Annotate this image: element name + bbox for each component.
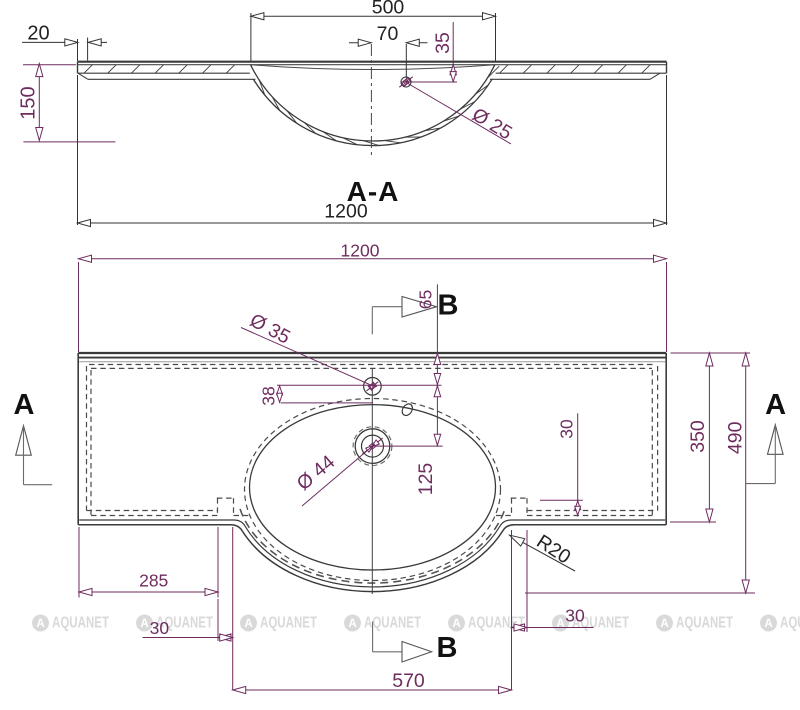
svg-text:38: 38 <box>259 386 279 405</box>
svg-text:B: B <box>438 290 459 322</box>
svg-text:A: A <box>765 389 786 421</box>
svg-text:A: A <box>348 618 356 630</box>
svg-text:70: 70 <box>377 23 399 45</box>
svg-text:A: A <box>244 618 252 630</box>
svg-text:A: A <box>452 618 460 630</box>
svg-text:AQUANET: AQUANET <box>260 615 317 632</box>
svg-text:35: 35 <box>432 32 454 54</box>
svg-text:1200: 1200 <box>324 201 368 223</box>
svg-text:30: 30 <box>557 419 577 439</box>
svg-text:65: 65 <box>416 290 436 309</box>
svg-text:30: 30 <box>565 606 585 626</box>
svg-text:285: 285 <box>139 571 168 591</box>
svg-text:490: 490 <box>724 421 746 454</box>
svg-text:570: 570 <box>392 670 425 692</box>
svg-text:A: A <box>764 618 772 630</box>
svg-text:A: A <box>14 389 35 421</box>
svg-text:350: 350 <box>687 420 709 453</box>
svg-text:A: A <box>660 618 668 630</box>
svg-text:30: 30 <box>150 618 170 638</box>
svg-text:20: 20 <box>27 23 49 45</box>
svg-text:AQUANET: AQUANET <box>52 615 109 632</box>
svg-text:AQUANET: AQUANET <box>676 615 733 632</box>
svg-text:B: B <box>437 632 458 664</box>
svg-text:A: A <box>140 618 148 630</box>
svg-text:AQUANET: AQUANET <box>780 615 800 632</box>
svg-text:125: 125 <box>415 463 437 496</box>
svg-text:1200: 1200 <box>341 241 380 261</box>
svg-text:A: A <box>36 618 44 630</box>
svg-text:150: 150 <box>18 86 40 119</box>
